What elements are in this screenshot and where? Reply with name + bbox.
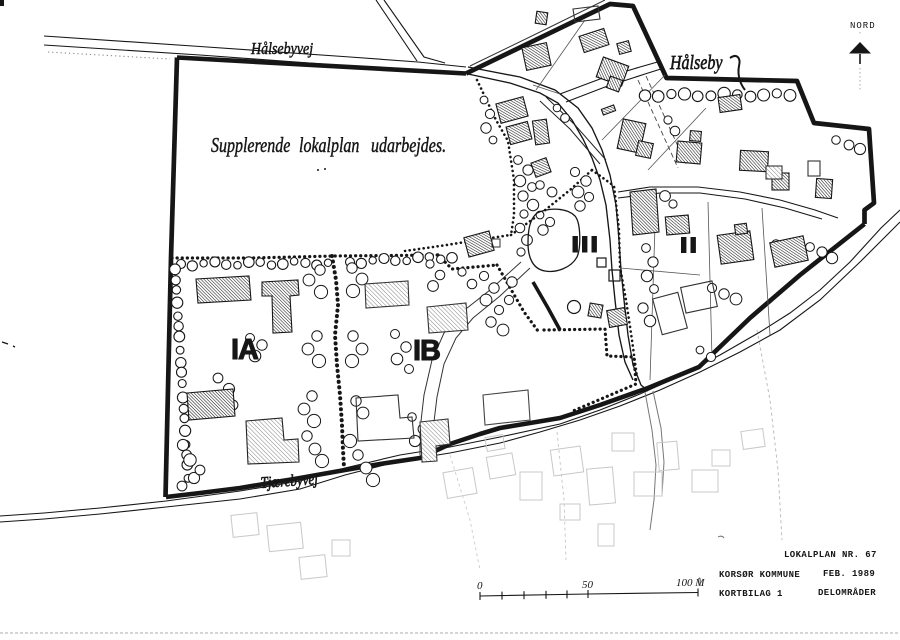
svg-text:DELOMRÅDER: DELOMRÅDER: [818, 587, 876, 598]
svg-text:0: 0: [477, 580, 483, 592]
svg-text:IB: IB: [413, 335, 440, 367]
svg-text:LOKALPLAN NR. 67: LOKALPLAN NR. 67: [784, 550, 877, 560]
svg-text:NORD: NORD: [850, 21, 876, 31]
svg-text:100 M: 100 M: [676, 577, 705, 589]
svg-text:FEB. 1989: FEB. 1989: [823, 569, 875, 579]
svg-text:lokalplan: lokalplan: [299, 134, 359, 158]
svg-text:KORSØR KOMMUNE: KORSØR KOMMUNE: [719, 570, 800, 580]
svg-text:Supplerende: Supplerende: [211, 134, 290, 158]
svg-text:50: 50: [582, 579, 594, 591]
svg-text:Hålsebyvej: Hålsebyvej: [250, 40, 313, 58]
svg-text:Hålseby: Hålseby: [669, 51, 723, 73]
svg-text:udarbejdes.: udarbejdes.: [371, 134, 446, 158]
svg-text:KORTBILAG 1: KORTBILAG 1: [719, 589, 783, 599]
svg-text:IA: IA: [231, 334, 259, 366]
